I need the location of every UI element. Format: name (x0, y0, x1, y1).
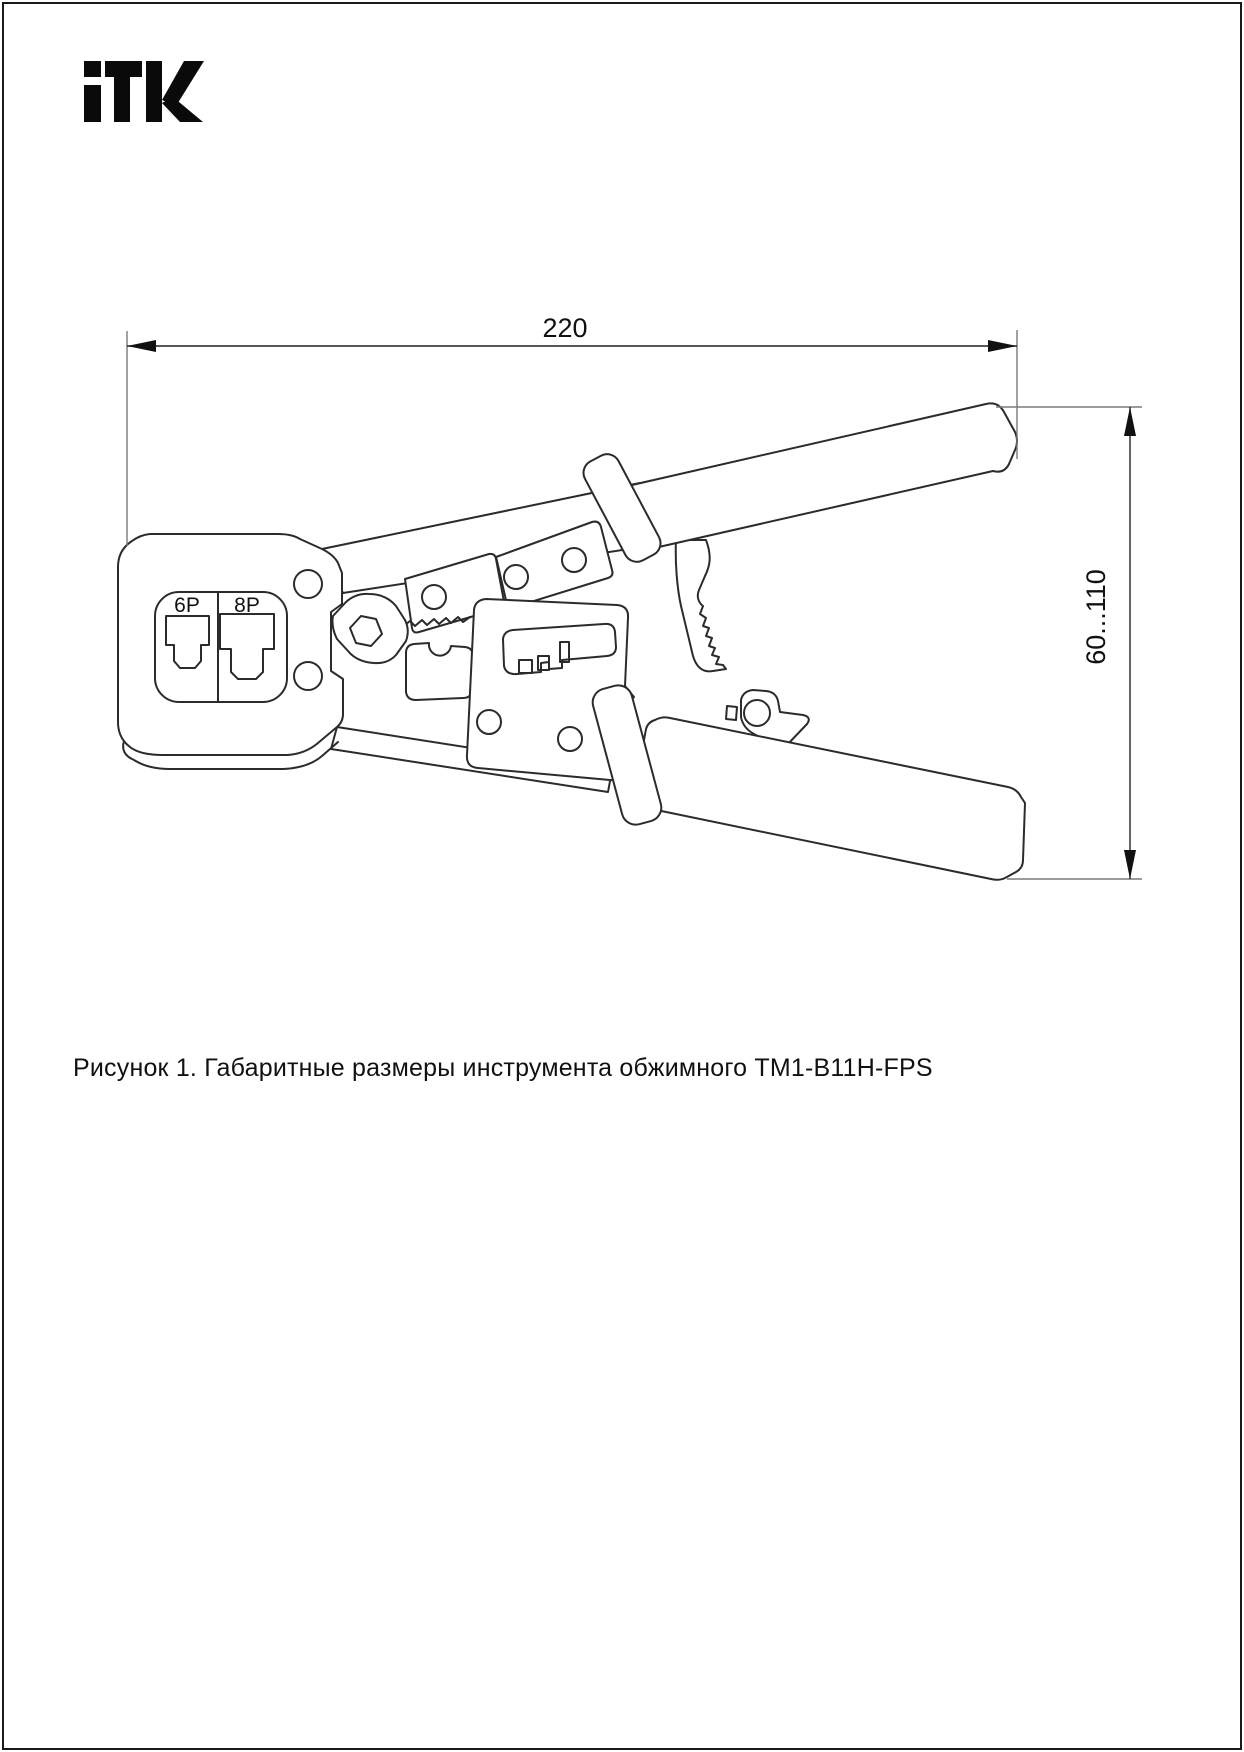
datasheet-page: 6P 8P 220 (0, 0, 1244, 1752)
logo-k-upper-arm (162, 61, 204, 106)
logo-k-bar (146, 61, 162, 122)
plate-hole (562, 548, 586, 572)
logo-i-stem (84, 85, 101, 122)
port-6p-label: 6P (174, 594, 200, 617)
plate-hole (504, 565, 528, 589)
lower-handle (634, 717, 1025, 879)
logo-i-dot (84, 61, 101, 77)
figure-caption: Рисунок 1. Габаритные размеры инструмент… (73, 1054, 933, 1083)
crimp-tool: 6P 8P (118, 403, 1025, 879)
bracket-hole (558, 727, 582, 751)
arrow-down (1124, 850, 1136, 879)
logo-t-bar (105, 61, 142, 77)
arrow-up (1124, 407, 1136, 436)
logo-k-lower-arm (162, 97, 203, 122)
lock-lever-tab (726, 706, 737, 720)
technical-drawing: 6P 8P 220 (0, 0, 1244, 1752)
width-dimension-label: 220 (542, 313, 587, 343)
arrow-left (127, 340, 156, 352)
head-screw-hole (294, 570, 322, 598)
height-dimension-label: 60...110 (1081, 569, 1111, 665)
arrow-right (988, 340, 1017, 352)
logo-t-stem (114, 77, 130, 122)
plate-hole (422, 585, 446, 609)
head-screw-hole (294, 662, 322, 690)
tool-head: 6P 8P (118, 534, 343, 769)
bracket-hole (477, 710, 501, 734)
port-8p-label: 8P (234, 594, 260, 617)
itk-logo (84, 61, 204, 122)
lock-lever-pin (744, 700, 770, 726)
ratchet-pawl (676, 540, 726, 671)
die-cavity (406, 643, 473, 700)
upper-handle (625, 403, 1017, 549)
